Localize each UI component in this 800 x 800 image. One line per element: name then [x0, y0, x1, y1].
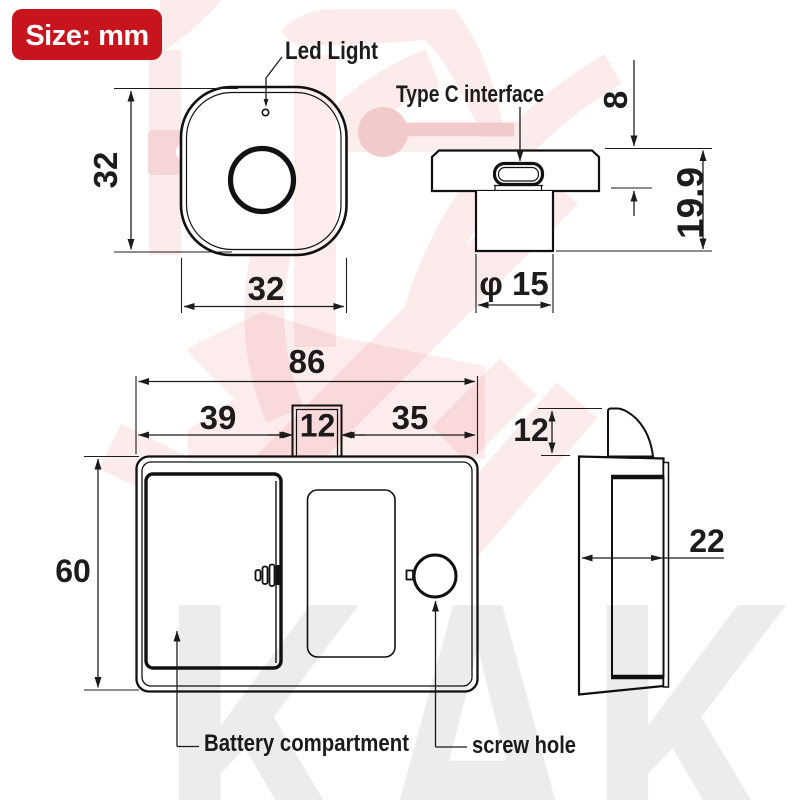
svg-text:φ 15: φ 15	[479, 265, 548, 302]
svg-text:Type C interface: Type C interface	[396, 81, 544, 108]
svg-text:Size: mm: Size: mm	[25, 20, 148, 52]
svg-text:12: 12	[513, 412, 549, 448]
svg-text:KAK: KAK	[160, 523, 800, 800]
svg-text:60: 60	[55, 553, 91, 589]
svg-text:8: 8	[597, 91, 634, 109]
svg-text:19.9: 19.9	[670, 167, 711, 239]
svg-text:32: 32	[87, 152, 124, 189]
svg-text:32: 32	[248, 270, 285, 307]
